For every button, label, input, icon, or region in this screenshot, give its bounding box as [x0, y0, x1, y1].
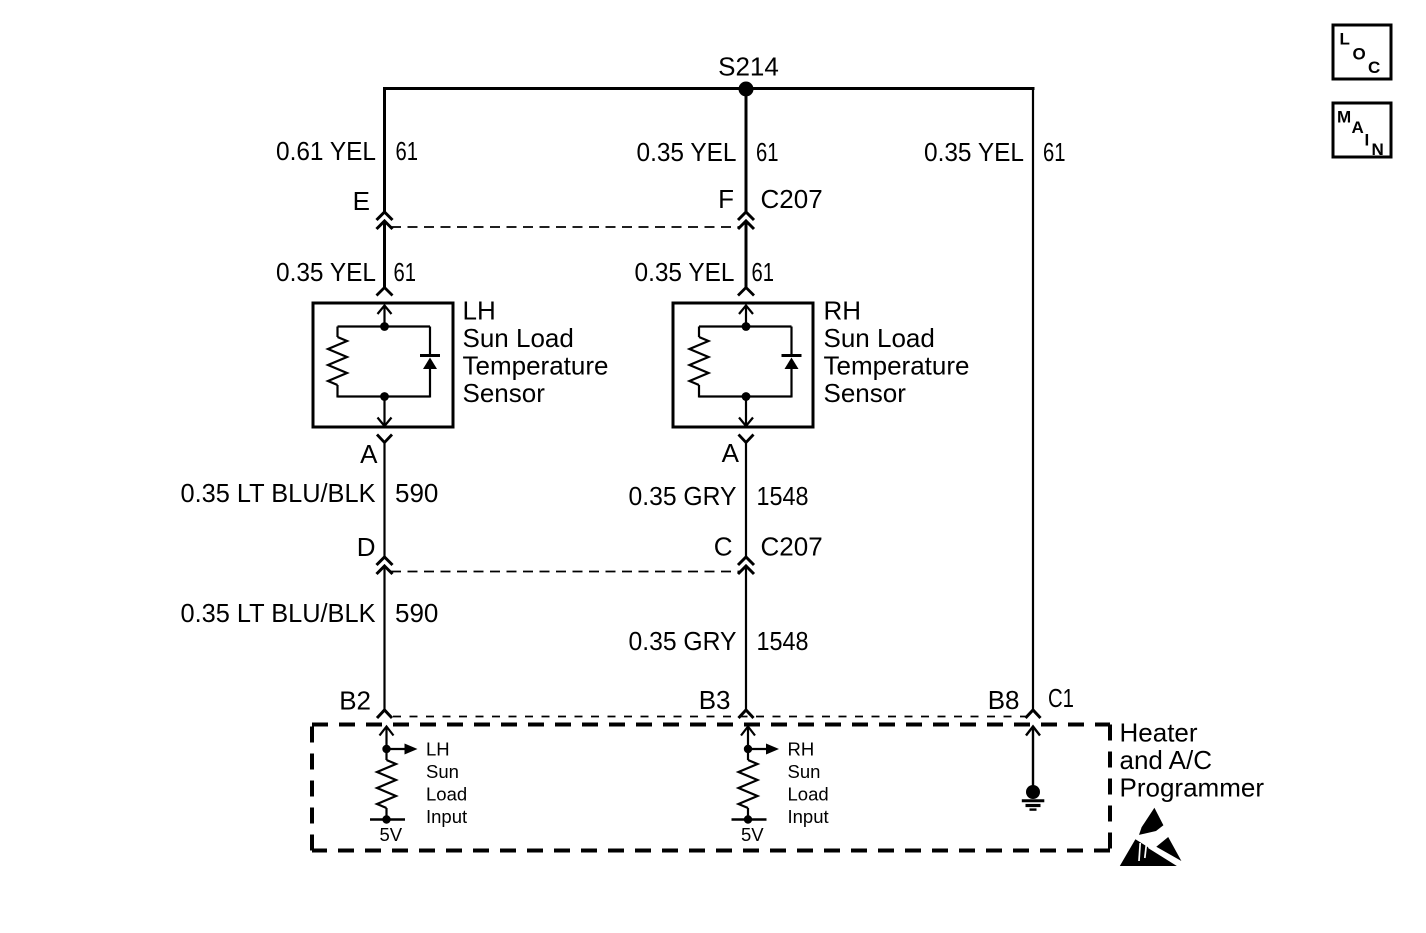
- svg-text:590: 590: [395, 598, 438, 628]
- svg-text:C: C: [714, 532, 733, 562]
- svg-text:590: 590: [395, 478, 438, 508]
- svg-text:0.35 GRY: 0.35 GRY: [629, 481, 737, 511]
- svg-text:B8: B8: [988, 685, 1020, 715]
- svg-text:5V: 5V: [741, 824, 764, 845]
- svg-text:Temperature: Temperature: [463, 351, 609, 381]
- svg-text:Sun Load: Sun Load: [824, 323, 935, 353]
- svg-text:B2: B2: [339, 686, 371, 716]
- svg-text:0.61 YEL: 0.61 YEL: [276, 136, 376, 166]
- svg-text:D: D: [357, 532, 376, 562]
- svg-text:Sun: Sun: [426, 761, 459, 782]
- svg-text:61: 61: [394, 257, 417, 287]
- svg-text:Load: Load: [426, 784, 467, 805]
- svg-text:S214: S214: [718, 52, 779, 82]
- svg-text:M: M: [1337, 108, 1351, 127]
- svg-text:E: E: [353, 186, 370, 216]
- svg-text:Input: Input: [788, 806, 829, 827]
- svg-text:A: A: [722, 438, 740, 468]
- svg-text:0.35 YEL: 0.35 YEL: [635, 257, 735, 287]
- svg-text:A: A: [360, 439, 378, 469]
- svg-text:0.35 YEL: 0.35 YEL: [637, 137, 737, 167]
- svg-text:B3: B3: [699, 685, 731, 715]
- svg-text:LH: LH: [426, 739, 450, 760]
- svg-text:61: 61: [396, 136, 419, 166]
- svg-text:0.35 LT BLU/BLK: 0.35 LT BLU/BLK: [181, 598, 377, 628]
- svg-text:Sensor: Sensor: [824, 378, 907, 408]
- svg-text:A: A: [1352, 118, 1364, 137]
- svg-text:61: 61: [752, 257, 775, 287]
- svg-text:Temperature: Temperature: [824, 351, 970, 381]
- svg-text:Sun: Sun: [788, 761, 821, 782]
- svg-text:0.35 LT BLU/BLK: 0.35 LT BLU/BLK: [181, 478, 377, 508]
- svg-text:0.35 YEL: 0.35 YEL: [276, 257, 376, 287]
- svg-text:Load: Load: [788, 784, 829, 805]
- svg-text:0.35 GRY: 0.35 GRY: [629, 626, 737, 656]
- svg-text:C1: C1: [1048, 683, 1074, 713]
- svg-text:Input: Input: [426, 806, 467, 827]
- svg-text:Programmer: Programmer: [1120, 773, 1265, 803]
- svg-text:5V: 5V: [380, 824, 403, 845]
- svg-text:61: 61: [756, 137, 779, 167]
- svg-text:61: 61: [1043, 137, 1066, 167]
- svg-text:Sensor: Sensor: [463, 378, 546, 408]
- svg-text:I: I: [1365, 131, 1370, 150]
- svg-text:RH: RH: [788, 739, 815, 760]
- svg-text:O: O: [1353, 45, 1366, 64]
- svg-text:0.35 YEL: 0.35 YEL: [924, 137, 1024, 167]
- svg-text:C: C: [1368, 58, 1380, 77]
- svg-text:Heater: Heater: [1120, 718, 1198, 748]
- svg-text:RH: RH: [824, 296, 862, 326]
- svg-text:Sun Load: Sun Load: [463, 323, 574, 353]
- svg-text:C207: C207: [761, 184, 823, 214]
- svg-text:C207: C207: [761, 532, 823, 562]
- svg-text:1548: 1548: [757, 626, 809, 656]
- svg-text:L: L: [1340, 30, 1350, 49]
- svg-text:1548: 1548: [757, 481, 809, 511]
- svg-text:F: F: [718, 184, 734, 214]
- svg-text:and A/C: and A/C: [1120, 745, 1213, 775]
- svg-text:LH: LH: [463, 296, 496, 326]
- svg-text:N: N: [1372, 140, 1384, 159]
